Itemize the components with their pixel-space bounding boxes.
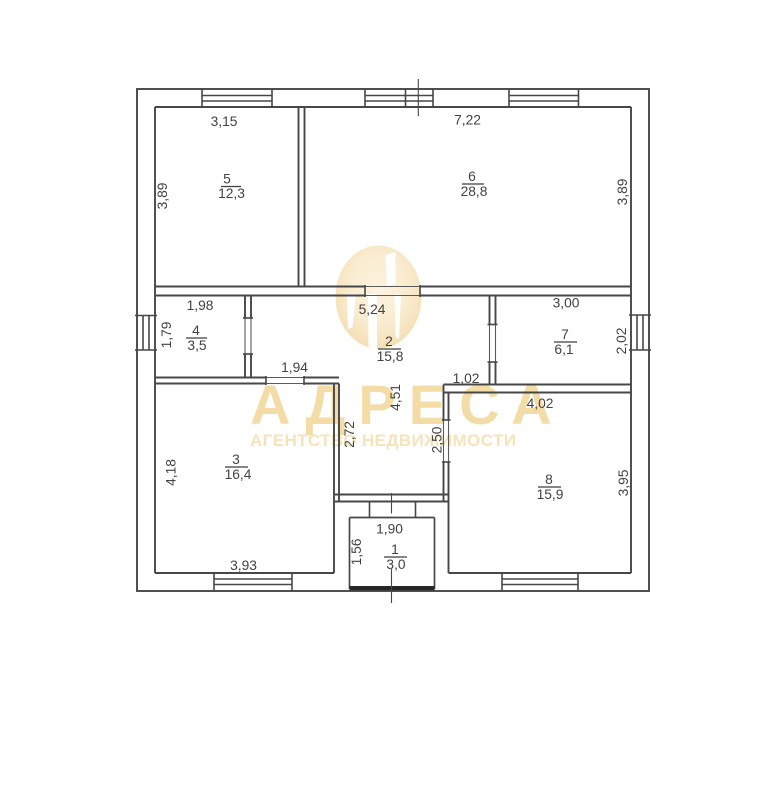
- svg-text:7,22: 7,22: [454, 113, 481, 128]
- svg-text:16,4: 16,4: [225, 467, 252, 482]
- svg-text:5,24: 5,24: [359, 302, 386, 317]
- svg-text:12,3: 12,3: [218, 186, 245, 201]
- svg-text:3,15: 3,15: [211, 114, 238, 129]
- svg-text:4,51: 4,51: [388, 384, 403, 411]
- svg-text:3,00: 3,00: [553, 296, 580, 311]
- svg-text:15,8: 15,8: [377, 349, 404, 364]
- svg-text:1,02: 1,02: [453, 371, 480, 386]
- svg-text:АДРЕСА: АДРЕСА: [250, 373, 565, 436]
- svg-text:2,72: 2,72: [342, 421, 357, 448]
- svg-text:3,93: 3,93: [230, 558, 257, 573]
- svg-text:4: 4: [192, 323, 200, 338]
- svg-text:5: 5: [223, 172, 231, 187]
- svg-text:1,79: 1,79: [159, 321, 174, 348]
- svg-text:6: 6: [468, 169, 476, 184]
- svg-text:2,02: 2,02: [614, 328, 629, 355]
- svg-text:3,95: 3,95: [616, 469, 631, 496]
- svg-text:15,9: 15,9: [537, 487, 564, 502]
- svg-text:1,94: 1,94: [281, 360, 308, 375]
- svg-text:1,98: 1,98: [187, 298, 214, 313]
- svg-text:3,5: 3,5: [187, 338, 207, 353]
- svg-text:6,1: 6,1: [554, 342, 573, 357]
- svg-text:3,89: 3,89: [155, 182, 170, 209]
- svg-text:8: 8: [545, 472, 553, 487]
- svg-text:2: 2: [385, 334, 393, 349]
- svg-text:2,50: 2,50: [430, 426, 445, 453]
- svg-text:3,89: 3,89: [615, 178, 630, 205]
- svg-text:АГЕНТСТВО НЕДВИЖИМОСТИ: АГЕНТСТВО НЕДВИЖИМОСТИ: [250, 431, 516, 450]
- svg-text:1,56: 1,56: [349, 538, 364, 565]
- svg-text:3: 3: [232, 452, 240, 467]
- svg-text:4,18: 4,18: [164, 459, 179, 486]
- svg-text:1,90: 1,90: [376, 522, 403, 537]
- svg-text:4,02: 4,02: [527, 396, 554, 411]
- svg-text:3,0: 3,0: [386, 557, 406, 572]
- svg-text:28,8: 28,8: [461, 184, 488, 199]
- svg-text:7: 7: [561, 327, 569, 342]
- svg-text:1: 1: [391, 542, 399, 557]
